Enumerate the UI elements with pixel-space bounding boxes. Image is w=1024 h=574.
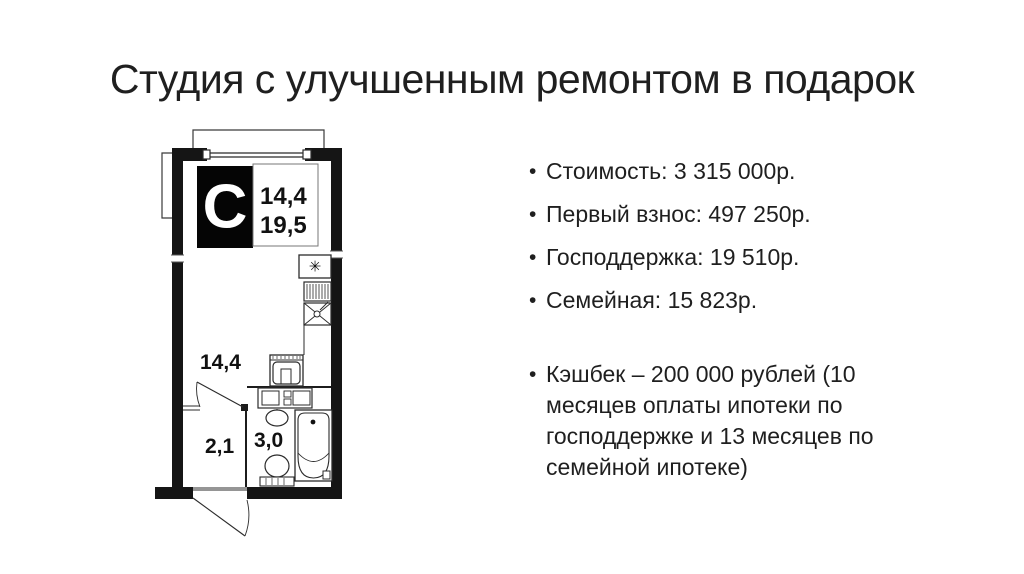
- door-hinge-stub: [241, 404, 248, 411]
- floorplan-drawing: C 14,4 19,5 ✳: [148, 126, 348, 550]
- vent-icon: ✳: [309, 259, 322, 276]
- area-info-box: 14,4 19,5: [253, 164, 318, 246]
- balcony-top-outline: [193, 130, 324, 148]
- bullet-state-support: Господдержка: 19 510р.: [527, 242, 919, 273]
- room-area-label: 14,4: [200, 351, 241, 374]
- area-value-total: 19,5: [260, 212, 307, 239]
- bathroom-area-label: 3,0: [254, 429, 283, 452]
- bathroom-sink: [266, 409, 288, 426]
- pricing-list: Стоимость: 3 315 000р. Первый взнос: 497…: [527, 156, 919, 483]
- interior-door: [183, 382, 243, 410]
- area-value-top: 14,4: [260, 183, 307, 210]
- washing-machine: [270, 355, 303, 386]
- entrance-door: [193, 488, 249, 536]
- bullet-price: Стоимость: 3 315 000р.: [527, 156, 919, 187]
- bullet-cashback: Кэшбек – 200 000 рублей (10 месяцев опла…: [527, 359, 919, 483]
- window: [203, 150, 311, 159]
- balcony-left-outline: [162, 153, 172, 218]
- bullet-downpayment: Первый взнос: 497 250р.: [527, 199, 919, 230]
- logo-letter: C: [203, 173, 248, 242]
- bathtub: [295, 410, 332, 481]
- vent-box: ✳: [299, 255, 331, 278]
- slide-title: Студия с улучшенным ремонтом в подарок: [0, 56, 1024, 103]
- bullet-family: Семейная: 15 823р.: [527, 285, 919, 316]
- hallway-area-label: 2,1: [205, 435, 235, 458]
- pricing-bullets: Стоимость: 3 315 000р. Первый взнос: 497…: [527, 156, 919, 495]
- toilet: [260, 455, 294, 486]
- floorplan: C 14,4 19,5 ✳: [148, 126, 348, 550]
- vanity-counter: [258, 388, 312, 408]
- stove: [304, 282, 331, 301]
- kitchen-sink: [304, 302, 331, 325]
